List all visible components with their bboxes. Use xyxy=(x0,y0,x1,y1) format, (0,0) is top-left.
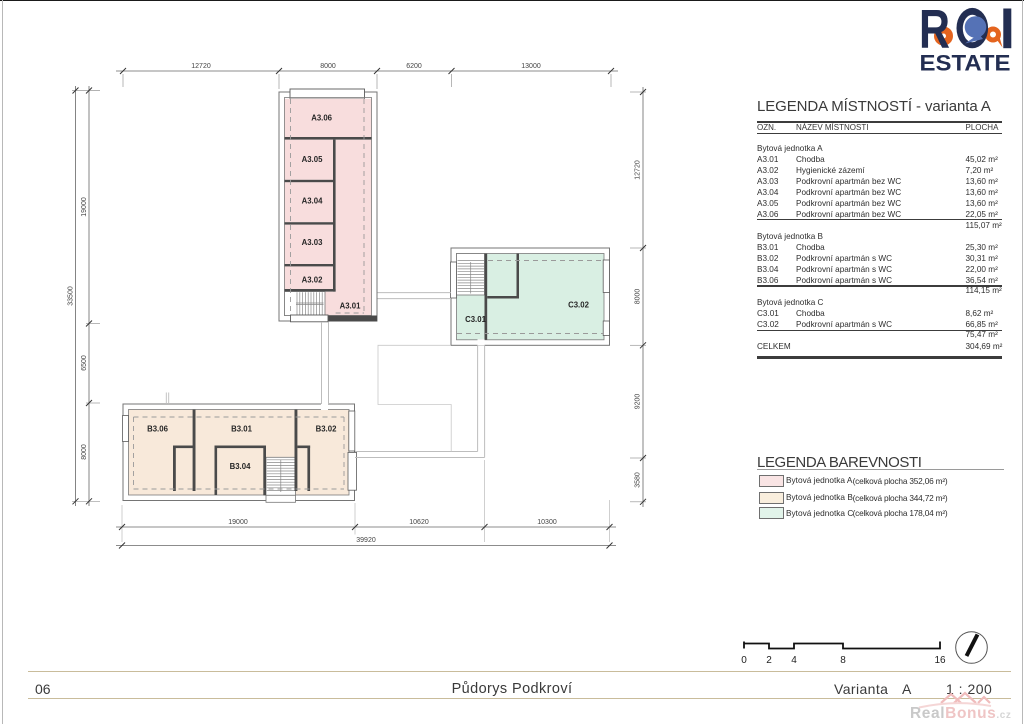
svg-text:2: 2 xyxy=(766,655,772,666)
svg-text:B3.01: B3.01 xyxy=(231,425,252,434)
svg-text:19000: 19000 xyxy=(81,197,88,217)
svg-text:19000: 19000 xyxy=(228,519,248,526)
svg-text:6200: 6200 xyxy=(406,63,422,70)
svg-text:6500: 6500 xyxy=(81,355,88,371)
svg-text:ESTATE: ESTATE xyxy=(920,51,1011,76)
svg-text:12720: 12720 xyxy=(635,160,642,180)
svg-text:8000: 8000 xyxy=(320,63,336,70)
svg-text:0: 0 xyxy=(741,655,747,666)
svg-text:10620: 10620 xyxy=(409,519,429,526)
svg-text:9200: 9200 xyxy=(635,394,642,410)
svg-text:39920: 39920 xyxy=(356,537,376,544)
svg-text:C3.01: C3.01 xyxy=(465,315,486,324)
svg-text:8000: 8000 xyxy=(635,289,642,305)
svg-text:4: 4 xyxy=(791,655,797,666)
svg-text:13000: 13000 xyxy=(521,63,541,70)
svg-text:A3.02: A3.02 xyxy=(302,276,323,285)
svg-text:A3.06: A3.06 xyxy=(311,113,332,122)
svg-text:8000: 8000 xyxy=(81,444,88,460)
svg-text:B3.04: B3.04 xyxy=(230,462,251,471)
svg-text:12720: 12720 xyxy=(191,63,211,70)
svg-text:3580: 3580 xyxy=(635,472,642,488)
svg-text:16: 16 xyxy=(934,655,946,666)
svg-text:33500: 33500 xyxy=(68,286,75,306)
svg-text:A3.04: A3.04 xyxy=(302,197,323,206)
svg-text:B3.02: B3.02 xyxy=(316,425,337,434)
svg-text:A3.01: A3.01 xyxy=(340,302,361,311)
svg-text:8: 8 xyxy=(840,655,846,666)
svg-text:A3.03: A3.03 xyxy=(302,238,323,247)
svg-text:C3.02: C3.02 xyxy=(568,301,589,310)
svg-text:10300: 10300 xyxy=(537,519,557,526)
svg-text:B3.06: B3.06 xyxy=(147,425,168,434)
svg-text:A3.05: A3.05 xyxy=(302,155,323,164)
